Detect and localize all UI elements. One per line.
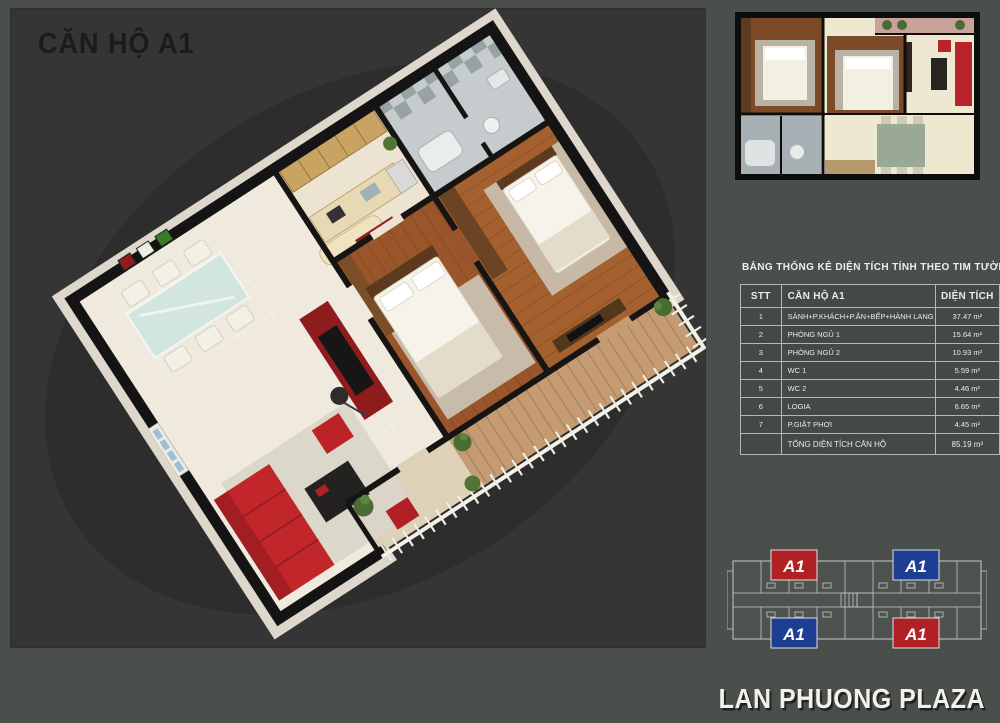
cell-area: 15.64 m²	[935, 326, 999, 344]
cell-stt: 1	[741, 308, 782, 326]
cell-area: 10.93 m²	[935, 344, 999, 362]
cell-name: P.GIẶT PHƠI	[781, 416, 935, 434]
top-down-plan	[735, 12, 980, 180]
unit-a1-top-left: A1	[771, 550, 817, 580]
cell-area: 4.45 m²	[935, 416, 999, 434]
plan-wc	[790, 145, 804, 159]
cell-stt: 7	[741, 416, 782, 434]
cell-name: SẢNH+P.KHÁCH+P.ĂN+BẾP+HÀNH LANG	[781, 308, 935, 326]
area-table-body: 1SẢNH+P.KHÁCH+P.ĂN+BẾP+HÀNH LANG37.47 m²…	[741, 308, 1000, 434]
col-header-stt: STT	[741, 285, 782, 308]
plan-pillow2	[845, 58, 891, 69]
plan-tub	[745, 140, 775, 166]
total-label: TỔNG DIỆN TÍCH CĂN HỘ	[781, 434, 935, 455]
plan-pillow1	[765, 48, 805, 60]
unit-a1-top-right: A1	[893, 550, 939, 580]
west-wing	[727, 571, 733, 629]
table-row: 7P.GIẶT PHƠI4.45 m²	[741, 416, 1000, 434]
plan-closet	[741, 18, 751, 114]
total-area: 85.19 m²	[935, 434, 999, 455]
unit-label: A1	[904, 557, 927, 576]
cell-stt: 4	[741, 362, 782, 380]
brand-title: LAN PHUONG PLAZA	[700, 684, 985, 716]
cell-area: 4.46 m²	[935, 380, 999, 398]
east-wing	[981, 571, 987, 629]
unit-label: A1	[904, 625, 927, 644]
area-table-title: BẢNG THỐNG KÊ DIỆN TÍCH TÍNH THEO TIM TƯ…	[742, 262, 982, 273]
unit-label: A1	[782, 557, 805, 576]
cell-name: PHÒNG NGỦ 1	[781, 326, 935, 344]
table-row: 2PHÒNG NGỦ 115.64 m²	[741, 326, 1000, 344]
plan-coffee-table	[931, 58, 947, 90]
table-row: 1SẢNH+P.KHÁCH+P.ĂN+BẾP+HÀNH LANG37.47 m²	[741, 308, 1000, 326]
cell-stt: 6	[741, 398, 782, 416]
cell-area: 5.59 m²	[935, 362, 999, 380]
cell-stt: 5	[741, 380, 782, 398]
unit-label: A1	[782, 625, 805, 644]
total-row: TỔNG DIỆN TÍCH CĂN HỘ 85.19 m²	[741, 434, 1000, 455]
cell-name: LOGIA	[781, 398, 935, 416]
plan-plant2	[897, 20, 907, 30]
cell-stt: 2	[741, 326, 782, 344]
table-row: 5WC 24.46 m²	[741, 380, 1000, 398]
area-table: STT CĂN HỘ A1 DIỆN TÍCH 1SẢNH+P.KHÁCH+P.…	[740, 284, 1000, 455]
unit-a1-bottom-right: A1	[893, 618, 939, 648]
brochure-page: CĂN HỘ A1	[0, 0, 1000, 723]
plan-armchair	[938, 40, 951, 52]
col-header-area: DIỆN TÍCH	[935, 285, 999, 308]
table-header-row: STT CĂN HỘ A1 DIỆN TÍCH	[741, 285, 1000, 308]
cell-name: PHÒNG NGỦ 2	[781, 344, 935, 362]
cell-name: WC 2	[781, 380, 935, 398]
cell-area: 37.47 m²	[935, 308, 999, 326]
plan-kitchen-counter	[825, 160, 875, 174]
unit-a1-bottom-left: A1	[771, 618, 817, 648]
table-row: 3PHÒNG NGỦ 210.93 m²	[741, 344, 1000, 362]
table-row: 4WC 15.59 m²	[741, 362, 1000, 380]
isometric-apartment-render	[10, 8, 706, 648]
cell-area: 6.65 m²	[935, 398, 999, 416]
cell-stt: 3	[741, 344, 782, 362]
plan-sofa	[955, 42, 972, 106]
page-title: CĂN HỘ A1	[38, 28, 195, 61]
plan-dining-table	[877, 124, 925, 167]
table-row: 6LOGIA6.65 m²	[741, 398, 1000, 416]
main-render-panel: CĂN HỘ A1	[10, 8, 706, 648]
area-table-section: STT CĂN HỘ A1 DIỆN TÍCH 1SẢNH+P.KHÁCH+P.…	[740, 284, 1000, 455]
plan-plant1	[882, 20, 892, 30]
cell-name: WC 1	[781, 362, 935, 380]
building-floor-key: A1 A1 A1 A1	[727, 547, 987, 653]
plan-plant3	[955, 20, 965, 30]
col-header-unit: CĂN HỘ A1	[781, 285, 935, 308]
